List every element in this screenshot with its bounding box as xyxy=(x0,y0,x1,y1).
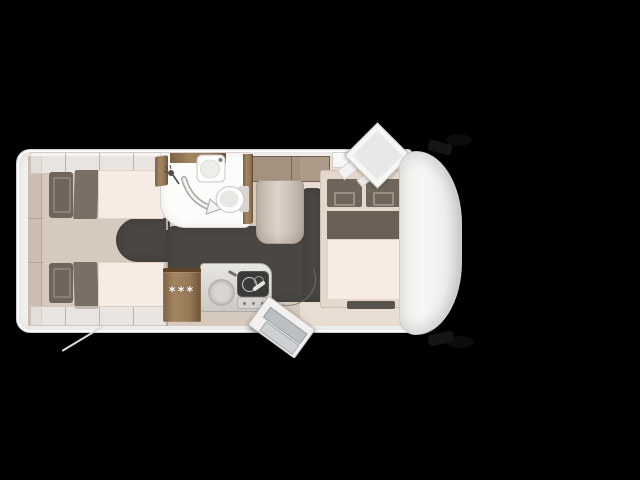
washbasin xyxy=(197,155,225,182)
bathroom-fixtures xyxy=(160,152,252,228)
locker-divider xyxy=(99,307,100,325)
bedside-step-mat xyxy=(347,301,395,309)
control-knob xyxy=(243,302,246,305)
rear-bed-bottom-mattress xyxy=(98,262,164,308)
front-bed-pillow-left xyxy=(327,179,362,207)
cab-hood xyxy=(399,151,462,335)
stove-hob xyxy=(237,271,269,297)
control-knob xyxy=(252,302,255,305)
pillow-seam xyxy=(334,192,355,206)
cabinet-divider xyxy=(291,157,292,181)
bench-seat xyxy=(256,180,304,244)
locker-divider xyxy=(65,307,66,325)
overhead-lockers-rear-bottom xyxy=(30,306,168,326)
overhead-cabinet-lounge xyxy=(252,156,330,182)
toilet xyxy=(216,186,249,213)
rear-bed-top-blanket xyxy=(73,170,99,219)
kitchen-sink xyxy=(208,279,235,306)
pillow-seam xyxy=(373,192,394,206)
shower-icon xyxy=(164,165,179,184)
rear-bed-top-pillow xyxy=(49,172,73,218)
rear-wall-seam xyxy=(28,218,44,219)
rear-bed-bottom-blanket xyxy=(73,262,99,309)
pillow-seam xyxy=(53,177,71,213)
rear-wall-seam xyxy=(28,262,44,263)
front-bed-mattress xyxy=(327,239,401,300)
pillow-seam xyxy=(53,268,71,298)
refrigerator: *** xyxy=(163,268,201,322)
locker-divider xyxy=(133,307,134,325)
rear-bed-bottom-pillow xyxy=(49,263,73,303)
rear-wall-band xyxy=(28,156,42,326)
locker-divider xyxy=(65,153,66,173)
freezer-rating-label: *** xyxy=(163,272,201,300)
swivel-wall-arrow xyxy=(184,179,221,214)
floorplan-canvas: *** xyxy=(0,0,640,480)
front-bed-blanket xyxy=(327,211,401,239)
